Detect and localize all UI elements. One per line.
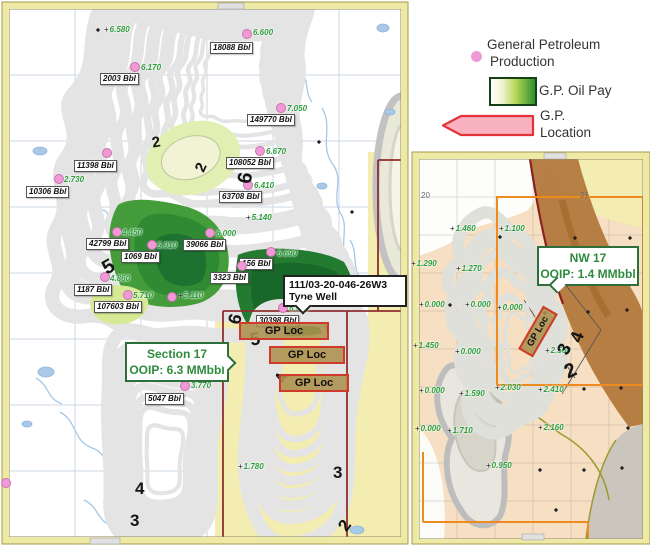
inset-pay-value: 1.710 [447,426,473,435]
inset-grid-label: 21 [580,191,589,200]
inset-pay-value: 0.000 [497,303,523,312]
type-well-uwi: 111/03-20-046-26W3 [289,279,401,291]
inset-survey-marker [538,468,542,472]
inset-pay-value: 0.950 [486,461,512,470]
contour-label: 6 [235,171,257,185]
inset-pay-value: 0.000 [419,300,445,309]
nw17-title: NW 17 [539,250,637,266]
production-well-dot [180,381,190,391]
production-well-dot [255,146,265,156]
legend-location-label: G.P. Location [540,107,591,141]
survey-marker [350,210,354,214]
survey-marker [96,28,100,32]
well-production-label: 3323 Bbl [210,272,249,284]
inset-survey-marker [582,387,586,391]
production-well-dot [237,261,247,271]
production-well-dot [276,103,286,113]
well-pay-value: 4.450 [122,228,142,237]
inset-pay-value: 0.000 [465,300,491,309]
inset-pay-value: 0.000 [419,386,445,395]
well-pay-value: 6.170 [141,63,161,72]
production-well-dot [1,478,11,488]
inset-pay-value: 1.460 [450,224,476,233]
legend-oil-pay-label: G.P. Oil Pay [539,82,612,99]
production-well-dot [130,62,140,72]
oil-pay-map-figure: General Petroleum Production G.P. Oil Pa… [0,0,650,546]
well-pay-value: 2.730 [64,175,84,184]
production-well-dot [54,174,64,184]
inset-survey-marker [498,235,502,239]
well-production-label: 149770 Bbl [247,114,295,126]
well-production-label: 107603 Bbl [94,301,142,313]
pay-contour-value: 6.580 [104,25,130,34]
well-pay-value: 7.050 [287,104,307,113]
production-well-dot [242,29,252,39]
pay-contour-value: 5.110 [178,291,203,300]
production-well-dot [102,148,112,158]
inset-pay-value: 2.160 [538,423,564,432]
inset-pay-value: 1.590 [459,389,485,398]
well-production-label: 5047 Bbl [145,393,184,405]
contour-label: 4 [135,480,144,497]
production-well-dot [123,290,133,300]
production-well-dot [266,247,276,257]
inset-survey-marker [582,468,586,472]
well-production-label: 63708 Bbl [219,191,262,203]
type-well-callout: 111/03-20-046-26W3 Type Well [283,275,407,307]
well-production-label: 1187 Bbl [74,284,112,296]
gp-location-box: GP Loc [279,374,349,392]
inset-survey-marker [625,308,629,312]
well-pay-value: 6.690 [277,249,297,258]
inset-survey-marker [448,303,452,307]
location-arrow-icon [440,113,536,138]
well-pay-value: 6.000 [216,229,236,238]
pay-contour-value: 5.140 [246,213,272,222]
section17-title: Section 17 [127,346,227,362]
pay-contour-value: 1.780 [238,462,264,471]
inset-contour-label: 4 [567,329,587,345]
inset-contour-label: 2 [561,360,580,383]
gp-location-box: GP Loc [239,322,329,340]
well-production-label: 18088 Bbl [210,42,253,54]
inset-pay-value: 1.290 [411,259,437,268]
legend-production-label: General Petroleum Production [487,36,600,70]
inset-grid-label: 20 [421,191,430,200]
production-well-dot [147,240,157,250]
well-production-label: 11398 Bbl [74,160,117,172]
inset-survey-marker [620,466,624,470]
well-production-label: 1069 Bbl [121,251,160,263]
well-production-label: 2003 Bbl [100,73,139,85]
contour-label: 2 [151,134,162,150]
section17-ooip-callout: Section 17 OOIP: 6.3 MMbbl [125,342,229,382]
well-pay-value: 6.670 [266,147,286,156]
inset-survey-marker [586,310,590,314]
contour-label: 2 [193,161,210,175]
production-well-dot [112,227,122,237]
inset-pay-value: 0.000 [455,347,481,356]
well-production-label: 42799 Bbl [86,238,129,250]
section17-ooip: OOIP: 6.3 MMbbl [127,362,227,378]
nw17-ooip-callout: NW 17 OOIP: 1.4 MMbbl [537,246,639,286]
inset-pay-value: 2.030 [495,383,521,392]
inset-pay-value: 0.000 [415,424,441,433]
production-well-dot [205,228,215,238]
well-pay-value: 6.600 [253,28,273,37]
inset-survey-marker [628,236,632,240]
oil-pay-gradient-swatch [489,77,537,106]
well-pay-value: 5.910 [157,241,177,250]
contour-label: 3 [333,464,342,481]
inset-pay-value: 1.270 [456,264,482,273]
gp-location-box: GP Loc [269,346,345,364]
inset-survey-marker [619,386,623,390]
survey-marker [317,140,321,144]
contour-label: 3 [130,512,139,529]
well-production-label: 108052 Bbl [226,157,274,169]
inset-pay-value: 2.410 [538,385,564,394]
production-dot-swatch [471,51,482,62]
inset-survey-marker [554,508,558,512]
well-production-label: 10306 Bbl [26,186,69,198]
well-pay-value: 3.770 [191,381,211,390]
well-pay-value: 5.710 [133,291,153,300]
inset-pay-value: 1.450 [413,341,439,350]
well-pay-value: 6.410 [254,181,274,190]
map-annotations: General Petroleum Production G.P. Oil Pa… [0,0,650,546]
production-well-dot [167,292,177,302]
inset-pay-value: 1.100 [499,224,525,233]
contour-label: 2 [335,517,354,535]
inset-survey-marker [626,426,630,430]
inset-survey-marker [573,236,577,240]
well-production-label: 39066 Bbl [183,239,226,251]
